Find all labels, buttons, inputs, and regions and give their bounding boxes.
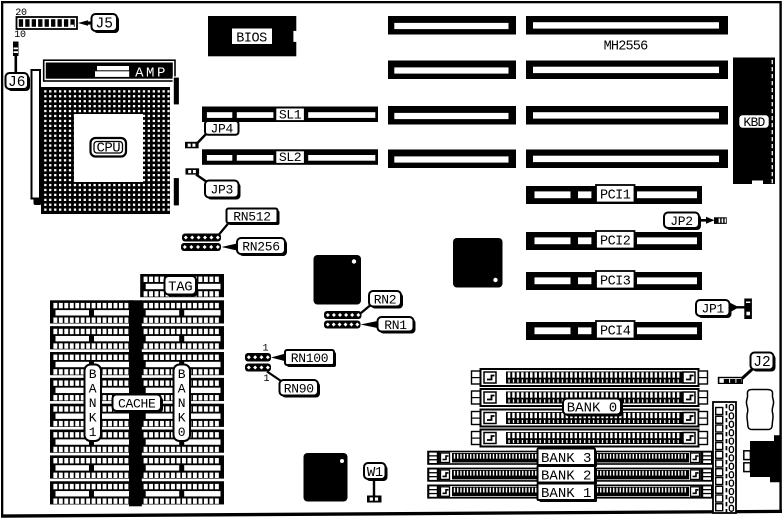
svg-text:CPU: CPU — [96, 141, 120, 157]
svg-text:B: B — [89, 367, 97, 382]
svg-text:JP2: JP2 — [670, 214, 693, 229]
svg-text:W1: W1 — [367, 465, 383, 481]
svg-text:JP1: JP1 — [701, 302, 724, 317]
svg-text:PCI4: PCI4 — [600, 324, 631, 339]
svg-text:SL1: SL1 — [279, 107, 302, 122]
svg-text:SL2: SL2 — [279, 150, 301, 165]
svg-text:JP3: JP3 — [210, 183, 233, 198]
svg-text:RN256: RN256 — [242, 240, 280, 255]
svg-text:J6: J6 — [8, 75, 25, 91]
svg-text:BANK 3: BANK 3 — [541, 451, 591, 467]
svg-text:MH2556: MH2556 — [604, 39, 649, 54]
svg-text:RN2: RN2 — [374, 292, 397, 307]
svg-text:0: 0 — [178, 425, 186, 440]
svg-text:PCI3: PCI3 — [600, 274, 631, 289]
svg-text:BIOS: BIOS — [236, 31, 267, 46]
svg-text:PCI1: PCI1 — [600, 188, 631, 203]
svg-text:1: 1 — [263, 374, 269, 385]
svg-text:BANK 2: BANK 2 — [541, 468, 591, 484]
svg-text:A: A — [89, 381, 97, 396]
svg-text:K: K — [178, 411, 186, 426]
svg-text:RN512: RN512 — [233, 209, 271, 224]
svg-text:KBD: KBD — [743, 115, 765, 130]
svg-text:A: A — [178, 381, 186, 396]
svg-text:CACHE: CACHE — [118, 396, 156, 411]
svg-text:K: K — [89, 411, 97, 426]
svg-text:BANK 1: BANK 1 — [541, 486, 591, 502]
svg-text:JP4: JP4 — [210, 122, 233, 137]
svg-text:RN90: RN90 — [284, 381, 314, 396]
svg-text:10: 10 — [14, 30, 26, 41]
svg-text:RN1: RN1 — [384, 318, 407, 333]
svg-text:B: B — [178, 367, 186, 382]
svg-text:AMP: AMP — [135, 66, 168, 82]
svg-text:TAG: TAG — [168, 279, 192, 295]
svg-text:PCI2: PCI2 — [600, 234, 631, 249]
svg-text:1: 1 — [262, 344, 268, 355]
svg-text:BANK 0: BANK 0 — [567, 401, 617, 417]
svg-text:N: N — [178, 396, 186, 411]
svg-text:RN100: RN100 — [291, 351, 329, 366]
svg-text:N: N — [89, 396, 97, 411]
svg-text:J2: J2 — [753, 355, 770, 371]
svg-text:J5: J5 — [96, 17, 113, 33]
svg-text:1: 1 — [89, 425, 97, 440]
